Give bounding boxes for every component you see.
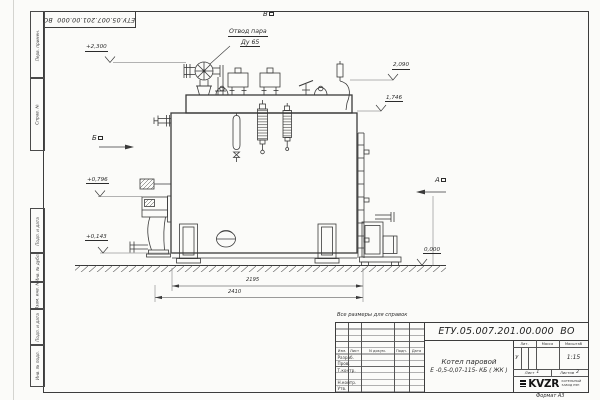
elevation-label-2300: +2,300 — [85, 44, 108, 50]
view-marker-v: В — [263, 10, 274, 18]
elevation-label-1746: 1,746 — [385, 95, 403, 101]
elevation-label-0143: +0,143 — [85, 234, 108, 240]
dimension-text-2410: 2410 — [228, 289, 241, 295]
elevation-label-0000: 0,000 — [423, 247, 441, 253]
tb-scale-label: Масштаб — [559, 340, 588, 347]
tb-row-tkontr: Т.контр. — [336, 367, 363, 373]
tb-logo-cell: KVZR КОТЕЛЬНЫЙ ЗАВОД РЭП — [513, 376, 588, 393]
steam-outlet-valve — [184, 62, 226, 95]
kvzr-logo-text: KVZR — [528, 378, 559, 390]
support-leg-right — [315, 224, 339, 263]
tb-row-utv: Утв. — [336, 386, 363, 392]
tb-lit-value: У — [513, 347, 521, 369]
drawing-sheet: ЕТУ.05.007.201.00.000 ВО Перв. примен. С… — [0, 0, 600, 400]
feed-valve — [154, 115, 171, 127]
tb-sheet-cell: Лист 1 — [513, 369, 551, 376]
view-marker-b: Б — [92, 134, 103, 142]
support-leg-left — [177, 224, 201, 263]
gauge-glass-2 — [283, 103, 292, 151]
view-index-mark — [441, 178, 446, 183]
ladder — [358, 133, 369, 258]
tb-col-doc: N докум. — [361, 348, 394, 354]
tb-doc-number: ЕТУ.05.007.201.00.000 ВО — [425, 323, 588, 340]
tb-lit-label: Лит. — [513, 340, 536, 347]
tb-sheets-cell: Листов 2 — [551, 369, 588, 376]
ground-line — [75, 266, 446, 273]
tb-col-podp: Подп. — [394, 348, 409, 354]
view-arrow-a — [416, 190, 446, 195]
safety-valve-box-2 — [260, 68, 280, 95]
steam-outlet-callout-line2: Ду 65 — [240, 39, 260, 46]
water-column — [233, 113, 240, 162]
safety-valve-box-1 — [228, 68, 248, 95]
blower-unit — [360, 212, 402, 266]
kvzr-logo-icon — [520, 380, 526, 387]
elevation-marks — [95, 57, 427, 266]
manhole — [217, 230, 236, 247]
dimension-line-2195 — [172, 284, 363, 287]
format-note: Формат А3 — [536, 393, 564, 399]
dimension-text-2195: 2195 — [246, 277, 259, 283]
view-arrow-b — [99, 145, 134, 150]
elevation-label-0796: +0,796 — [86, 177, 109, 183]
tb-col-data: Дата — [409, 348, 424, 354]
lever-valve — [299, 81, 313, 96]
view-index-mark — [98, 136, 103, 141]
gauge-glass-1 — [258, 100, 268, 154]
view-marker-a: А — [435, 176, 446, 184]
view-index-mark — [269, 12, 274, 17]
burner-assembly — [130, 196, 171, 257]
tb-scale-value: 1:15 — [559, 347, 588, 369]
title-block: Изм. Лист N докум. Подп. Дата Разраб. Пр… — [335, 322, 589, 393]
steam-platform — [186, 95, 352, 113]
level-gauge-pipe — [337, 61, 349, 110]
steam-outlet-leader — [210, 46, 230, 64]
reference-note: Все размеры для справок — [337, 312, 407, 318]
steam-outlet-callout-line1: Отвод пара — [228, 28, 268, 35]
side-bracket — [140, 179, 171, 189]
elevation-label-2090: 2,090 — [392, 62, 410, 68]
tb-mass-label: Масса — [536, 340, 559, 347]
kvzr-logo-subtext: КОТЕЛЬНЫЙ ЗАВОД РЭП — [562, 380, 582, 388]
dimension-line-2410 — [155, 296, 363, 299]
tb-product-name: Котел паровой Е -0,5-0,07-115- КБ ( ЖК ) — [425, 340, 513, 392]
lifting-lug-right — [315, 86, 328, 95]
